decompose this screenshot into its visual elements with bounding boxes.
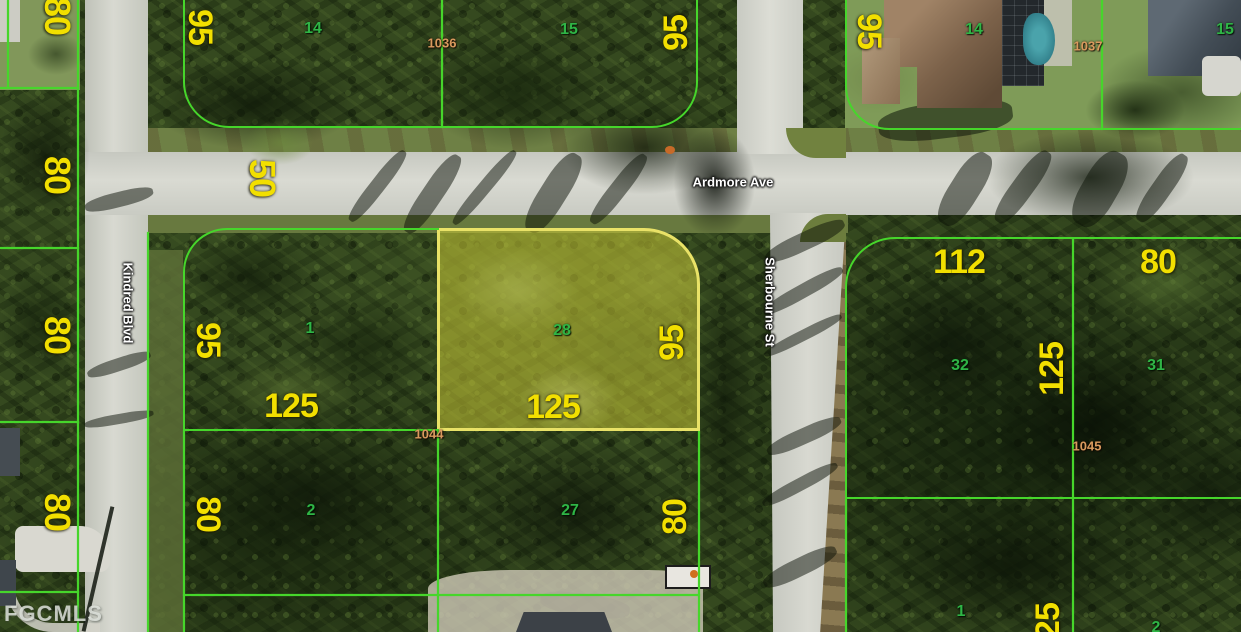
tree-canopy <box>195 435 425 560</box>
parcel-divider-north-right <box>1101 0 1103 130</box>
parcel-line-kindred-east-row <box>147 232 149 632</box>
house-roof-west-2 <box>0 560 16 606</box>
lot-number-2-east: 2 <box>1152 620 1161 632</box>
parcel-line-west-h3 <box>0 421 79 423</box>
parcel-line-west-h4 <box>0 591 79 593</box>
dim-label-80-west-1: 80 <box>39 0 75 35</box>
dim-label-road-width-50: 50 <box>244 159 280 197</box>
street-label-ardmore: Ardmore Ave <box>693 176 774 189</box>
block-id-1036: 1036 <box>428 37 457 50</box>
lot-number-15-nl: 15 <box>560 22 578 38</box>
tree-canopy <box>985 130 1195 225</box>
parcel-line-east-west-lower <box>845 499 847 632</box>
dim-label-80-lot31: 80 <box>1140 245 1176 279</box>
dim-label-80-west-2: 80 <box>39 156 75 194</box>
lot-number-14-nl: 14 <box>304 21 322 37</box>
dim-label-125-lot31: 125 <box>1035 342 1069 396</box>
dim-label-80-west-4: 80 <box>39 493 75 531</box>
dim-label-125-lot28: 125 <box>526 390 580 424</box>
lot-number-31: 31 <box>1147 358 1165 374</box>
lot-number-1: 1 <box>306 321 315 337</box>
block-id-1037: 1037 <box>1074 40 1103 53</box>
vehicle-cargo <box>690 570 698 578</box>
parcel-divider-east <box>1072 238 1074 632</box>
street-label-kindred: Kindred Blvd <box>122 263 135 344</box>
parcel-line-center-west <box>183 430 185 632</box>
dim-label-125-lot1: 125 <box>264 389 318 423</box>
lot-number-1-east: 1 <box>957 604 966 620</box>
lot-number-27: 27 <box>561 503 579 519</box>
orange-marker-dot <box>665 146 675 154</box>
parcel-divider-north-left <box>441 0 443 128</box>
house-roof-west-1 <box>0 428 20 476</box>
parcel-divider-center <box>437 431 439 632</box>
tree-canopy <box>880 500 1140 630</box>
parcel-line-center-south <box>183 594 700 596</box>
parcel-line-west-h2 <box>0 247 79 249</box>
street-label-sherbourne: Sherbourne St <box>764 257 777 347</box>
tree-canopy <box>695 245 755 555</box>
dim-label-95-lot28: 95 <box>655 325 689 361</box>
dim-label-112-lot32: 112 <box>933 245 985 279</box>
dim-label-95-lot1: 95 <box>191 322 225 358</box>
grass-shoulder-kindred-east <box>148 250 183 632</box>
dim-label-125-east-south: 125 <box>1031 603 1065 632</box>
block-id-1045: 1045 <box>1073 440 1102 453</box>
parcel-line-center-east <box>698 431 700 632</box>
dim-label-80-lot27: 80 <box>658 499 692 535</box>
dim-label-95-nr-west: 95 <box>852 13 886 49</box>
dim-label-95-nl-east: 95 <box>659 15 693 51</box>
driveway-top-left <box>0 0 20 42</box>
parked-vehicle <box>665 565 711 589</box>
block-id-1044: 1044 <box>415 428 444 441</box>
lot-number-32: 32 <box>951 358 969 374</box>
house-roof-bottom-center <box>516 612 612 632</box>
aerial-parcel-map: Ardmore Ave Kindred Blvd Sherbourne St 5… <box>0 0 1241 632</box>
fgcmls-watermark: FGCMLS <box>4 601 103 627</box>
lot-number-2: 2 <box>307 503 316 519</box>
parcel-line-west-edge-top <box>7 0 9 88</box>
dim-label-80-west-3: 80 <box>39 316 75 354</box>
lot-number-15-nr: 15 <box>1216 22 1234 38</box>
dim-label-80-lot2: 80 <box>191 496 225 532</box>
lot-number-28: 28 <box>553 323 571 339</box>
dim-label-95-nl-west: 95 <box>183 9 217 45</box>
lot-number-14-nr: 14 <box>965 22 983 38</box>
parcel-outline-north-right-block <box>845 0 1241 130</box>
parcel-line-west-h1 <box>0 87 79 89</box>
